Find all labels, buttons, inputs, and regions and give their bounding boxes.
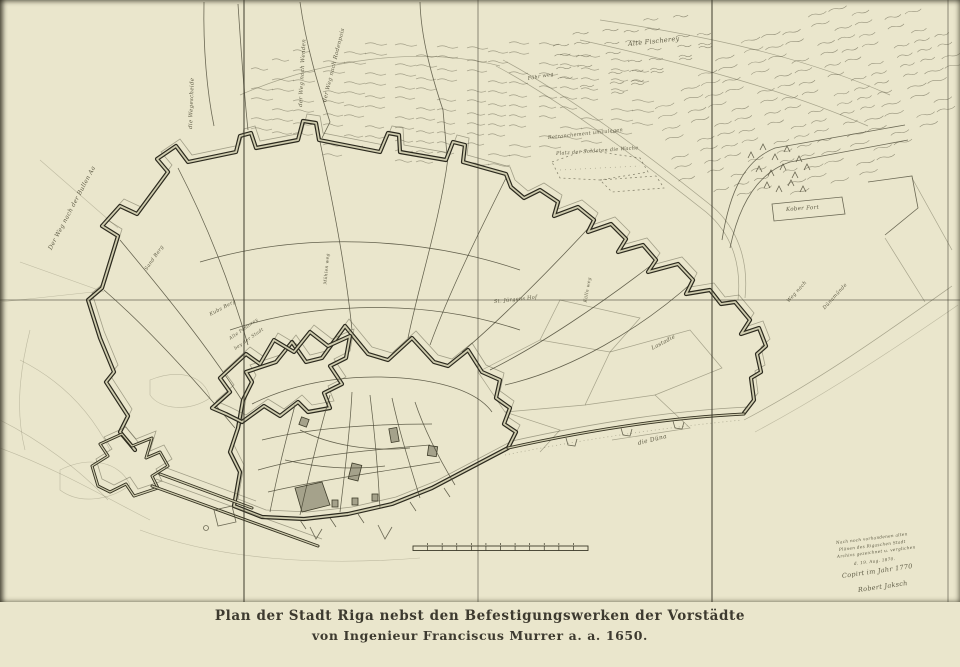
- outer-enceinte: [88, 114, 770, 450]
- city-streets: [252, 377, 492, 515]
- kobern-fort: [722, 125, 952, 302]
- scanned-map-page: { "caption": { "line1": "Plan der Stadt …: [0, 0, 960, 667]
- shorelines: [0, 286, 958, 520]
- map-caption-subtitle: von Ingenieur Franciscus Murrer a. a. 16…: [0, 628, 960, 643]
- river-embankment: [300, 407, 748, 539]
- caption-block: Plan der Stadt Riga nebst den Befestigun…: [0, 608, 960, 643]
- map-drawing: [0, 0, 960, 602]
- planned-works-outline: [552, 150, 664, 192]
- fold-lines: [0, 0, 960, 602]
- scale-bar: [413, 543, 588, 551]
- terrain-hatching: [251, 0, 960, 230]
- map-caption-title: Plan der Stadt Riga nebst den Befestigun…: [0, 608, 960, 624]
- suburb-roads: [104, 132, 695, 428]
- west-hornwork: [92, 427, 322, 546]
- city-enceinte: [230, 319, 520, 519]
- map-plate: Der Weg nach der Bullen Aadie Wegescheid…: [0, 0, 960, 602]
